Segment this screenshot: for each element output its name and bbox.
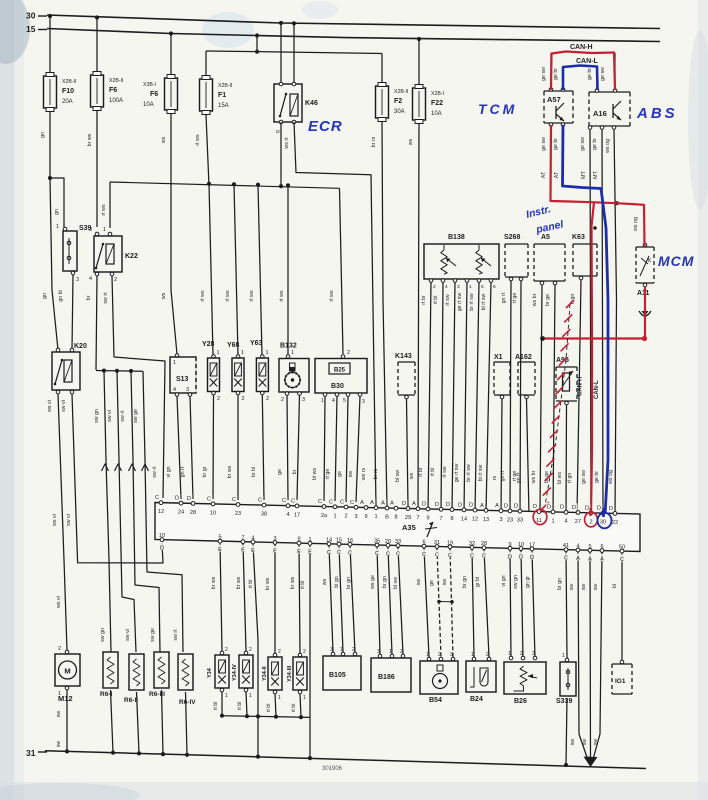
svg-text:ge br: ge br: [553, 68, 559, 80]
svg-text:A11: A11: [637, 290, 650, 297]
svg-text:rt ws: rt ws: [329, 290, 335, 302]
svg-text:17: 17: [529, 542, 535, 548]
svg-text:sw: sw: [569, 584, 575, 591]
svg-text:6: 6: [493, 284, 496, 290]
svg-text:C: C: [396, 552, 400, 558]
svg-text:41: 41: [563, 543, 569, 549]
svg-text:D: D: [560, 505, 564, 511]
svg-text:br ws: br ws: [236, 576, 242, 589]
svg-text:15A: 15A: [218, 103, 229, 109]
svg-text:bl: bl: [612, 584, 618, 588]
svg-text:gn: gn: [42, 293, 48, 299]
svg-text:MT: MT: [581, 170, 587, 178]
svg-text:ge br: ge br: [587, 68, 593, 80]
svg-text:C: C: [327, 550, 331, 556]
svg-text:10: 10: [518, 542, 524, 548]
svg-text:ws vi: ws vi: [56, 596, 62, 608]
svg-text:28: 28: [190, 510, 196, 516]
svg-text:bl rt sw: bl rt sw: [481, 293, 487, 310]
svg-text:1: 1: [266, 350, 269, 356]
svg-text:50: 50: [619, 545, 625, 551]
svg-text:3: 3: [354, 514, 357, 520]
svg-text:rt sw: rt sw: [442, 466, 448, 477]
svg-text:8: 8: [450, 516, 453, 522]
svg-text:rt ge: rt ge: [325, 469, 331, 480]
svg-text:C: C: [482, 554, 486, 560]
svg-text:3: 3: [330, 647, 333, 653]
svg-text:D: D: [585, 505, 589, 511]
svg-text:9: 9: [426, 515, 429, 521]
svg-text:sw: sw: [56, 711, 62, 718]
svg-text:10A: 10A: [143, 102, 154, 108]
svg-text:D: D: [187, 496, 191, 502]
svg-text:K22: K22: [125, 253, 138, 260]
svg-text:bl rt sw: bl rt sw: [478, 464, 484, 481]
svg-text:rt ge: rt ge: [512, 293, 518, 304]
svg-text:D: D: [609, 506, 613, 512]
svg-text:32: 32: [469, 541, 475, 547]
svg-text:B24: B24: [470, 696, 483, 703]
svg-text:3: 3: [186, 387, 189, 393]
svg-text:E: E: [273, 548, 277, 554]
svg-text:bl sw: bl sw: [395, 470, 401, 482]
svg-text:ws rt: ws rt: [284, 137, 290, 149]
svg-text:br gn: br gn: [346, 577, 352, 589]
svg-text:1: 1: [374, 514, 377, 520]
svg-text:MCM: MCM: [658, 253, 694, 269]
svg-text:F10: F10: [62, 88, 74, 95]
svg-text:C: C: [291, 498, 295, 504]
svg-text:br ws: br ws: [87, 133, 93, 146]
svg-text:9: 9: [364, 514, 367, 520]
svg-text:CAN-H: CAN-H: [570, 44, 593, 51]
svg-text:rt sw: rt sw: [445, 294, 451, 305]
svg-text:4: 4: [173, 387, 176, 393]
svg-text:23: 23: [235, 511, 241, 517]
svg-text:B30: B30: [331, 383, 344, 390]
svg-text:A: A: [600, 557, 604, 563]
svg-text:1: 1: [278, 695, 281, 701]
svg-text:M12: M12: [58, 694, 73, 703]
svg-text:A: A: [381, 501, 385, 507]
svg-text:AT: AT: [541, 171, 547, 178]
svg-text:1: 1: [469, 284, 472, 290]
svg-text:D: D: [572, 505, 576, 511]
svg-text:4: 4: [332, 398, 335, 404]
svg-text:29: 29: [405, 515, 411, 521]
svg-text:CAN-L: CAN-L: [576, 58, 598, 65]
svg-text:K46: K46: [305, 100, 318, 107]
svg-text:ws vi: ws vi: [47, 400, 53, 412]
svg-text:14: 14: [461, 516, 467, 522]
svg-text:gn bl: gn bl: [58, 290, 64, 302]
svg-text:1: 1: [389, 649, 392, 655]
svg-text:R6-III: R6-III: [149, 691, 165, 698]
svg-text:sw: sw: [581, 584, 587, 591]
svg-text:Y63: Y63: [250, 340, 263, 347]
svg-text:D: D: [458, 502, 462, 508]
svg-text:10A: 10A: [431, 111, 442, 117]
svg-text:K20: K20: [74, 343, 87, 350]
svg-text:33: 33: [395, 539, 401, 545]
svg-text:rt bl: rt bl: [248, 580, 254, 589]
svg-text:sw ge: sw ge: [133, 409, 139, 423]
svg-text:rt br: rt br: [421, 295, 427, 305]
svg-text:3: 3: [450, 652, 453, 658]
svg-text:S13: S13: [176, 376, 189, 383]
svg-text:1: 1: [249, 693, 252, 699]
svg-text:1: 1: [340, 647, 343, 653]
svg-text:5: 5: [588, 544, 591, 550]
svg-text:rt gn: rt gn: [567, 473, 573, 484]
svg-text:3: 3: [89, 227, 92, 233]
svg-text:2: 2: [589, 519, 592, 525]
svg-text:sw: sw: [582, 739, 588, 746]
svg-text:Y28: Y28: [202, 341, 215, 348]
svg-text:ge sw: ge sw: [580, 137, 586, 151]
svg-text:Y34-II: Y34-II: [262, 666, 268, 681]
svg-text:CAN-L: CAN-L: [594, 380, 600, 399]
svg-text:C: C: [620, 557, 624, 563]
svg-text:1: 1: [508, 651, 511, 657]
svg-text:ge: ge: [277, 469, 283, 475]
svg-text:3: 3: [377, 649, 380, 655]
svg-text:gn rt: gn rt: [501, 292, 507, 303]
svg-text:C: C: [448, 553, 452, 559]
svg-text:C: C: [155, 495, 159, 501]
svg-text:br bl: br bl: [251, 467, 257, 477]
svg-text:19: 19: [447, 540, 453, 546]
svg-text:rt bl: rt bl: [266, 704, 272, 713]
svg-text:30: 30: [26, 11, 36, 21]
svg-text:3: 3: [499, 517, 502, 523]
svg-text:4: 4: [564, 519, 567, 525]
svg-text:10: 10: [210, 510, 216, 516]
svg-text:ws og: ws og: [608, 470, 614, 484]
svg-text:t2: t2: [276, 129, 280, 134]
svg-text:C: C: [348, 550, 352, 556]
svg-text:12: 12: [158, 509, 164, 515]
svg-text:F6: F6: [150, 91, 158, 98]
svg-text:br ws: br ws: [211, 576, 217, 589]
svg-text:A: A: [588, 556, 592, 562]
svg-text:ge sw: ge sw: [600, 67, 606, 81]
svg-text:X2B-II: X2B-II: [109, 78, 123, 84]
svg-text:sw gn: sw gn: [513, 575, 519, 589]
svg-text:ws: ws: [408, 138, 414, 145]
svg-text:C: C: [386, 551, 390, 557]
svg-text:2: 2: [352, 647, 355, 653]
svg-text:Y68: Y68: [227, 342, 240, 349]
svg-text:ws: ws: [322, 578, 328, 585]
svg-text:sw rt: sw rt: [173, 629, 179, 641]
svg-text:D: D: [402, 501, 406, 507]
svg-text:F6: F6: [109, 87, 117, 94]
svg-text:7: 7: [416, 515, 419, 521]
svg-text:15: 15: [336, 538, 342, 544]
svg-text:38: 38: [261, 512, 267, 518]
svg-text:3: 3: [457, 284, 460, 290]
svg-text:F22: F22: [431, 100, 443, 107]
svg-text:br ws: br ws: [290, 576, 296, 589]
svg-text:sw: sw: [593, 584, 599, 591]
svg-text:E: E: [241, 548, 245, 554]
svg-text:27: 27: [575, 519, 581, 525]
svg-text:CAN-H: CAN-H: [578, 377, 584, 396]
svg-text:1: 1: [562, 653, 565, 659]
svg-text:B54: B54: [429, 697, 442, 704]
svg-text:1: 1: [551, 518, 554, 524]
svg-text:13: 13: [483, 517, 489, 523]
svg-text:br rt sw: br rt sw: [469, 293, 475, 311]
svg-text:2: 2: [344, 514, 347, 520]
svg-text:A: A: [576, 556, 580, 562]
svg-text:1: 1: [103, 227, 106, 233]
svg-text:2: 2: [347, 350, 350, 356]
svg-text:6: 6: [600, 544, 603, 550]
svg-text:br rt sw: br rt sw: [466, 464, 472, 482]
svg-text:C: C: [350, 500, 354, 506]
svg-text:3: 3: [362, 399, 365, 405]
svg-text:35: 35: [374, 538, 380, 544]
svg-text:D: D: [446, 502, 450, 508]
svg-text:2: 2: [438, 652, 441, 658]
svg-text:X2B-I: X2B-I: [431, 91, 444, 97]
svg-text:2: 2: [400, 649, 403, 655]
svg-text:1: 1: [426, 652, 429, 658]
svg-text:D: D: [519, 555, 523, 561]
svg-text:ws: ws: [161, 136, 167, 143]
svg-text:C: C: [564, 556, 568, 562]
svg-text:E: E: [251, 548, 255, 554]
svg-text:ws vi: ws vi: [52, 514, 58, 526]
svg-text:rt ws: rt ws: [195, 134, 201, 146]
svg-text:C: C: [435, 552, 439, 558]
svg-text:ge: ge: [429, 580, 435, 586]
svg-text:gn: gn: [54, 209, 60, 215]
svg-text:rt bl: rt bl: [433, 296, 439, 305]
svg-text:D: D: [530, 555, 534, 561]
svg-text:rt bl: rt bl: [300, 581, 306, 590]
svg-text:100A: 100A: [109, 98, 123, 104]
svg-text:A: A: [480, 503, 484, 509]
svg-text:2: 2: [303, 649, 306, 655]
svg-text:5: 5: [218, 535, 221, 541]
svg-text:7: 7: [241, 535, 244, 541]
svg-text:D: D: [504, 503, 508, 509]
svg-text:10: 10: [159, 533, 165, 539]
svg-text:E: E: [308, 549, 312, 555]
svg-text:rs: rs: [492, 475, 498, 480]
svg-text:22: 22: [612, 520, 618, 526]
svg-text:1: 1: [471, 652, 474, 658]
svg-text:A35: A35: [402, 523, 416, 532]
svg-text:D: D: [514, 504, 518, 510]
svg-text:31: 31: [26, 748, 36, 758]
svg-text:B132: B132: [280, 343, 297, 350]
svg-text:E: E: [297, 549, 301, 555]
svg-text:301906: 301906: [322, 766, 343, 772]
svg-text:9: 9: [508, 542, 511, 548]
svg-text:B26: B26: [514, 698, 527, 705]
svg-text:B186: B186: [378, 674, 395, 681]
svg-text:B25: B25: [334, 368, 346, 374]
svg-text:30A: 30A: [394, 109, 405, 115]
svg-text:1: 1: [308, 537, 311, 543]
svg-text:ECR: ECR: [308, 118, 343, 135]
svg-text:br gn: br gn: [462, 576, 468, 588]
svg-text:2: 2: [486, 652, 489, 658]
svg-text:F2: F2: [394, 98, 402, 105]
svg-text:rt bl: rt bl: [213, 702, 219, 711]
svg-text:Y34: Y34: [207, 667, 213, 678]
svg-text:M: M: [64, 667, 70, 676]
svg-text:1: 1: [173, 360, 176, 366]
svg-text:rt ws: rt ws: [101, 204, 107, 216]
svg-text:2: 2: [114, 277, 117, 283]
svg-text:24: 24: [178, 510, 184, 516]
svg-text:ge br: ge br: [553, 138, 559, 150]
svg-text:6: 6: [422, 540, 425, 546]
svg-text:3: 3: [302, 397, 305, 403]
svg-text:1: 1: [225, 693, 228, 699]
svg-text:A: A: [390, 501, 394, 507]
svg-text:1: 1: [333, 513, 336, 519]
svg-text:bl ws: bl ws: [312, 468, 318, 480]
svg-text:X2B-II: X2B-II: [394, 89, 408, 95]
svg-text:2a: 2a: [321, 513, 328, 519]
svg-text:E: E: [218, 547, 222, 553]
svg-text:K63: K63: [572, 234, 585, 241]
svg-text:C: C: [318, 499, 322, 505]
svg-text:br ws: br ws: [265, 577, 271, 590]
svg-text:1: 1: [241, 350, 244, 356]
svg-text:C: C: [340, 500, 344, 506]
svg-text:4: 4: [445, 284, 448, 290]
svg-text:20: 20: [385, 539, 391, 545]
svg-text:ws rs: ws rs: [361, 467, 367, 480]
svg-text:sw: sw: [416, 579, 422, 586]
svg-text:3: 3: [76, 277, 79, 283]
svg-text:C: C: [282, 498, 286, 504]
svg-text:bl sw: bl sw: [393, 577, 399, 589]
svg-text:ge rt sw: ge rt sw: [457, 293, 463, 312]
svg-text:2: 2: [266, 396, 269, 402]
svg-text:ge sw: ge sw: [581, 470, 587, 484]
svg-text:sw rt: sw rt: [152, 466, 158, 478]
svg-text:gr bl: gr bl: [475, 577, 481, 587]
svg-text:ABS: ABS: [636, 105, 678, 122]
svg-text:4: 4: [286, 512, 289, 518]
svg-text:20A: 20A: [62, 99, 73, 105]
svg-text:gn gr: gn gr: [525, 576, 531, 588]
svg-text:D: D: [597, 506, 601, 512]
svg-text:rt bl: rt bl: [430, 468, 436, 477]
svg-text:sw vi: sw vi: [107, 410, 113, 422]
svg-text:A: A: [360, 500, 364, 506]
svg-text:rt ws: rt ws: [279, 290, 285, 302]
svg-text:2: 2: [58, 646, 61, 652]
svg-text:br rs: br rs: [373, 468, 379, 479]
svg-text:sw: sw: [593, 739, 599, 746]
svg-text:2: 2: [281, 397, 284, 403]
svg-text:gn: gn: [40, 132, 46, 138]
svg-text:A: A: [370, 500, 374, 506]
svg-text:D: D: [175, 496, 179, 502]
svg-text:D: D: [422, 501, 426, 507]
svg-text:5: 5: [481, 284, 484, 290]
svg-text:3: 3: [273, 536, 276, 542]
svg-text:A5: A5: [541, 234, 550, 241]
svg-text:ws og: ws og: [605, 139, 611, 153]
svg-text:D: D: [508, 554, 512, 560]
svg-text:sw vi: sw vi: [61, 400, 67, 412]
svg-text:4: 4: [576, 543, 579, 549]
svg-text:ge rt sw: ge rt sw: [454, 464, 460, 483]
svg-text:1: 1: [217, 350, 220, 356]
svg-text:23: 23: [507, 517, 513, 523]
svg-text:3: 3: [532, 651, 535, 657]
svg-text:14: 14: [326, 537, 332, 543]
svg-text:1: 1: [303, 695, 306, 701]
svg-text:br gn: br gn: [557, 578, 563, 590]
svg-text:C: C: [258, 498, 262, 504]
svg-text:4: 4: [89, 276, 92, 282]
svg-text:ws br: ws br: [532, 293, 538, 306]
svg-text:K143: K143: [395, 353, 412, 360]
svg-text:bl ws: bl ws: [557, 472, 563, 484]
svg-text:sw rt: sw rt: [103, 292, 109, 304]
svg-text:9: 9: [297, 537, 300, 543]
svg-text:C: C: [207, 496, 211, 502]
svg-text:X3B-I: X3B-I: [143, 82, 156, 88]
svg-text:ws br: ws br: [531, 470, 537, 483]
svg-text:28: 28: [481, 541, 487, 547]
svg-text:rt bl: rt bl: [237, 702, 243, 711]
svg-text:br gn: br gn: [382, 576, 388, 588]
svg-text:sw gn: sw gn: [100, 628, 106, 642]
svg-text:sw rt: sw rt: [120, 410, 126, 422]
svg-text:C: C: [375, 551, 379, 557]
svg-text:2: 2: [249, 647, 252, 653]
svg-text:bl gn: bl gn: [334, 576, 340, 588]
svg-text:B: B: [385, 515, 389, 521]
svg-text:A57: A57: [547, 95, 561, 104]
svg-text:D: D: [435, 502, 439, 508]
svg-text:ge sw: ge sw: [541, 137, 547, 151]
svg-text:R6-IV: R6-IV: [179, 699, 196, 706]
svg-text:2: 2: [242, 396, 245, 402]
svg-text:B138: B138: [448, 234, 465, 241]
svg-text:sw vi: sw vi: [125, 629, 131, 641]
svg-text:ws og: ws og: [633, 217, 639, 231]
svg-text:br rs: br rs: [371, 136, 377, 147]
svg-text:sw vi: sw vi: [66, 514, 72, 526]
svg-text:2: 2: [225, 647, 228, 653]
svg-text:ws: ws: [409, 472, 415, 479]
svg-text:sw gn: sw gn: [94, 409, 100, 423]
svg-text:ws: ws: [161, 292, 167, 299]
svg-text:vi gn: vi gn: [501, 575, 507, 586]
svg-text:br: br: [292, 469, 298, 474]
svg-text:2: 2: [278, 649, 281, 655]
svg-text:15: 15: [26, 24, 36, 34]
svg-text:D: D: [547, 504, 551, 510]
svg-text:31: 31: [434, 540, 440, 546]
svg-text:C: C: [232, 497, 236, 503]
svg-text:4: 4: [251, 535, 254, 541]
svg-text:rt br: rt br: [418, 467, 424, 477]
